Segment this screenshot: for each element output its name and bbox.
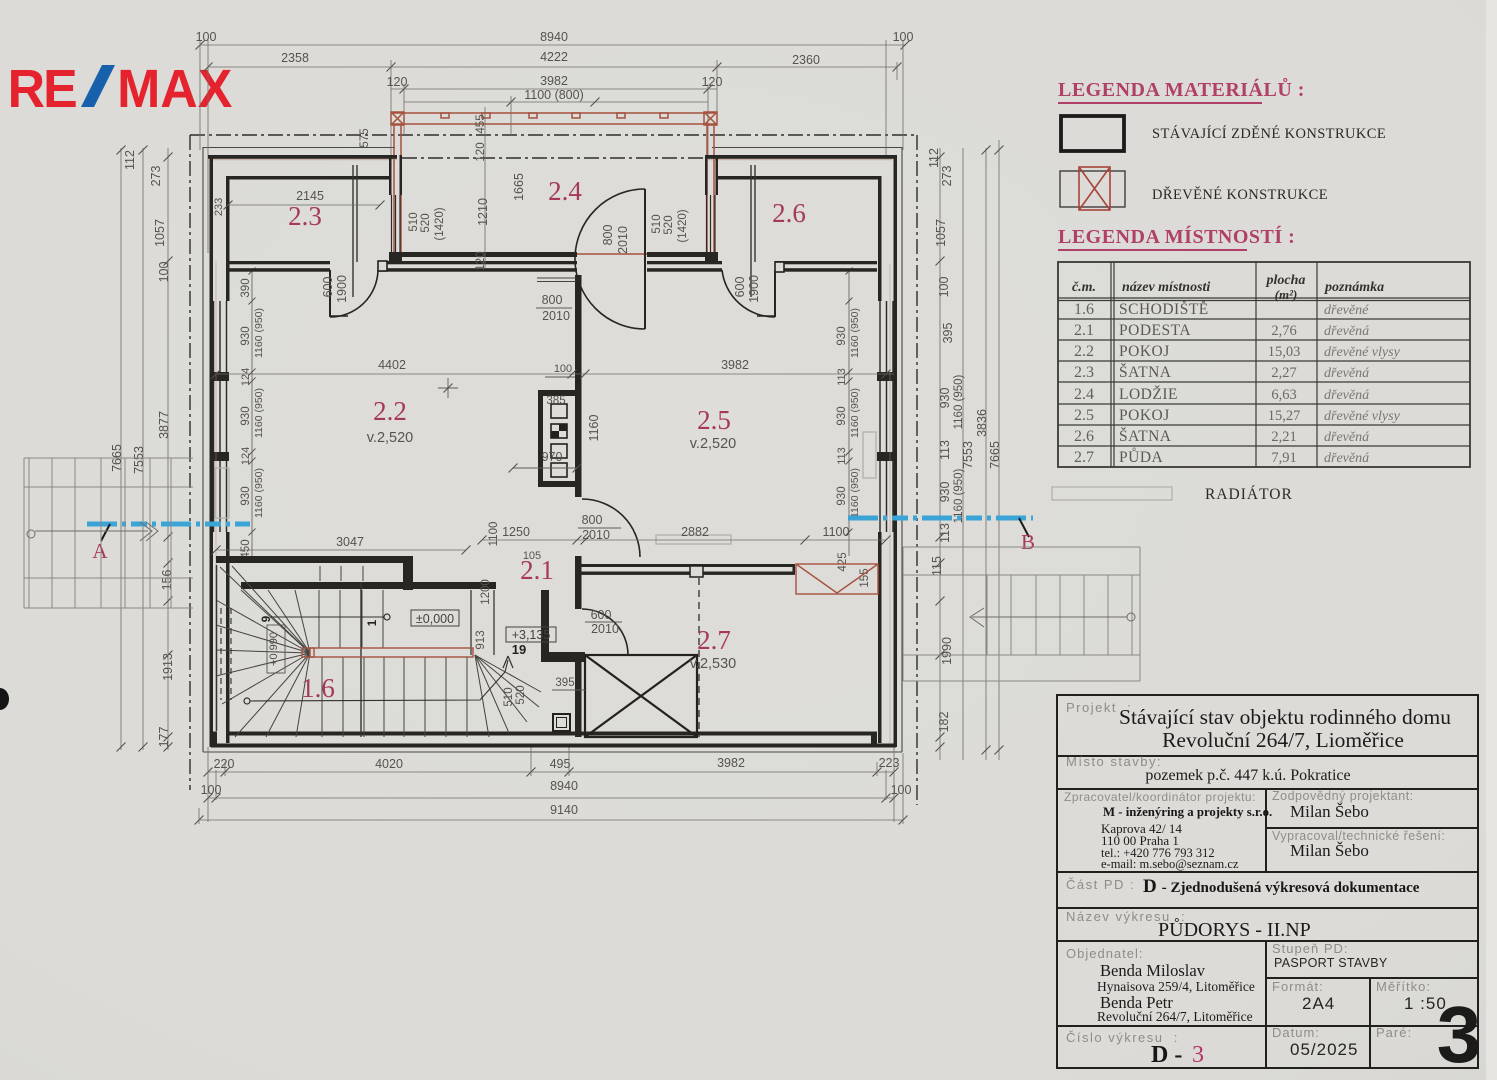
svg-text:100: 100	[937, 277, 951, 298]
svg-text:3047: 3047	[336, 535, 364, 549]
svg-text:DŘEVĚNÉ KONSTRUKCE: DŘEVĚNÉ KONSTRUKCE	[1152, 186, 1328, 203]
svg-text:450: 450	[240, 539, 252, 558]
svg-text:B: B	[1021, 530, 1035, 554]
svg-text:510: 510	[503, 687, 515, 706]
svg-text:3: 3	[1437, 990, 1482, 1079]
svg-text:2.2: 2.2	[1074, 343, 1094, 360]
svg-text:913: 913	[475, 630, 487, 649]
svg-text:3982: 3982	[540, 74, 568, 88]
svg-text:poznámka: poznámka	[1324, 280, 1384, 295]
svg-text:800: 800	[542, 293, 563, 307]
svg-text:Revoluční 264/7, Litoměřice: Revoluční 264/7, Litoměřice	[1097, 1009, 1253, 1024]
svg-text:510: 510	[651, 214, 663, 233]
svg-text:2.4: 2.4	[1074, 386, 1094, 403]
svg-text:495: 495	[550, 757, 571, 771]
svg-text:1913: 1913	[161, 653, 175, 681]
svg-text:1160 (950): 1160 (950)	[849, 388, 861, 438]
svg-text:7553: 7553	[961, 441, 975, 469]
svg-text:+3,135: +3,135	[512, 628, 551, 642]
svg-text:Benda Miloslav: Benda Miloslav	[1100, 961, 1206, 980]
svg-text:2.5: 2.5	[697, 405, 731, 435]
svg-text:124: 124	[240, 368, 252, 386]
svg-text:2.1: 2.1	[520, 555, 554, 585]
svg-text:600: 600	[321, 277, 335, 298]
svg-text:SCHODIŠTĚ: SCHODIŠTĚ	[1119, 301, 1209, 318]
svg-text:+0,990: +0,990	[268, 632, 280, 666]
svg-text:100: 100	[157, 262, 171, 283]
svg-text:1900: 1900	[335, 275, 349, 303]
svg-text:1.6: 1.6	[301, 673, 335, 703]
svg-text:120: 120	[475, 251, 487, 270]
svg-text:dřevěné: dřevěné	[1324, 303, 1369, 318]
svg-text:273: 273	[149, 166, 163, 187]
svg-text:115: 115	[930, 556, 944, 576]
svg-text:1900: 1900	[747, 275, 761, 303]
svg-text:dřevěná: dřevěná	[1324, 366, 1369, 381]
svg-text:RE: RE	[8, 59, 77, 119]
svg-text:Část PD :: Část PD :	[1066, 877, 1135, 892]
svg-text:273: 273	[940, 166, 954, 187]
svg-text:3877: 3877	[157, 411, 171, 439]
svg-text:POKOJ: POKOJ	[1119, 407, 1170, 424]
svg-text:e-mail: m.sebo@seznam.cz: e-mail: m.sebo@seznam.cz	[1101, 857, 1239, 871]
svg-text:1665: 1665	[512, 173, 526, 201]
svg-text:STÁVAJÍCÍ ZDĚNÉ KONSTRUKCE: STÁVAJÍCÍ ZDĚNÉ KONSTRUKCE	[1152, 125, 1386, 142]
svg-text:120: 120	[475, 142, 487, 161]
svg-text:7665: 7665	[988, 441, 1002, 469]
svg-text:930: 930	[836, 406, 848, 425]
svg-text:Stupeň PD:: Stupeň PD:	[1272, 941, 1349, 956]
svg-text:970: 970	[542, 450, 563, 464]
svg-text:124: 124	[240, 447, 252, 465]
svg-text:1100 (800): 1100 (800)	[524, 88, 584, 102]
svg-text:2010: 2010	[582, 528, 610, 542]
svg-text:182: 182	[937, 712, 951, 733]
svg-text:MAX: MAX	[117, 59, 232, 119]
svg-text:9: 9	[261, 616, 273, 622]
svg-text:Měřítko:: Měřítko:	[1376, 979, 1431, 994]
svg-text:2.2: 2.2	[373, 396, 407, 426]
svg-text:8940: 8940	[540, 30, 568, 44]
svg-text:ŠATNA: ŠATNA	[1119, 364, 1172, 381]
svg-text:390: 390	[240, 278, 252, 297]
svg-text:pozemek p.č. 447 k.ú. Pokratic: pozemek p.č. 447 k.ú. Pokratice	[1145, 767, 1350, 784]
svg-text:2358: 2358	[281, 51, 309, 65]
svg-text:A: A	[92, 539, 108, 563]
svg-text:Milan Šebo: Milan Šebo	[1290, 841, 1369, 860]
svg-text:v.2,530: v.2,530	[690, 656, 737, 672]
svg-text:1160 (950): 1160 (950)	[953, 374, 965, 429]
svg-text:ŠATNA: ŠATNA	[1119, 428, 1172, 445]
svg-text:1100: 1100	[823, 525, 850, 539]
svg-text:PŮDORYS - II.NP: PŮDORYS - II.NP	[1158, 917, 1311, 941]
svg-text:Datum:: Datum:	[1272, 1025, 1320, 1040]
svg-text:1250: 1250	[502, 525, 530, 539]
svg-text:800: 800	[601, 225, 615, 246]
svg-text:233: 233	[213, 198, 225, 216]
svg-text:155: 155	[859, 568, 871, 587]
svg-text:Zpracovatel/koordinátor projek: Zpracovatel/koordinátor projektu:	[1064, 790, 1256, 804]
svg-text:113: 113	[938, 440, 952, 460]
svg-text:930: 930	[836, 486, 848, 505]
svg-text:dřevěné vlysy: dřevěné vlysy	[1324, 345, 1401, 360]
svg-text:±0,000: ±0,000	[416, 612, 454, 626]
svg-text:1200: 1200	[480, 579, 492, 605]
svg-text:425: 425	[837, 552, 849, 571]
svg-text:2,27: 2,27	[1271, 365, 1296, 381]
svg-text:1.6: 1.6	[1074, 301, 1094, 318]
svg-text:930: 930	[836, 326, 848, 345]
svg-text:dřevěná: dřevěná	[1324, 451, 1369, 466]
svg-text:(m²): (m²)	[1275, 287, 1298, 302]
svg-text:15,03: 15,03	[1268, 344, 1301, 360]
svg-text:930: 930	[240, 326, 252, 345]
svg-text:2.1: 2.1	[1074, 322, 1094, 339]
svg-text:113: 113	[836, 447, 848, 465]
svg-text:112: 112	[927, 148, 941, 168]
svg-text:Objednatel:: Objednatel:	[1066, 946, 1144, 961]
svg-text:100: 100	[893, 30, 914, 44]
svg-text:1990: 1990	[940, 637, 954, 665]
svg-text:177: 177	[157, 727, 171, 748]
svg-text:Revoluční 264/7, Lioměřice: Revoluční 264/7, Lioměřice	[1162, 728, 1404, 752]
svg-text:1160 (950): 1160 (950)	[253, 468, 265, 518]
svg-text:113: 113	[938, 523, 952, 543]
svg-text:7553: 7553	[132, 446, 146, 474]
svg-text:1160 (950): 1160 (950)	[849, 308, 861, 358]
svg-text:395: 395	[941, 323, 955, 344]
svg-text:2010: 2010	[542, 309, 570, 323]
svg-text:2360: 2360	[792, 53, 820, 67]
svg-text:Hynaisova 259/4, Litoměřice: Hynaisova 259/4, Litoměřice	[1097, 979, 1255, 994]
svg-text:PŮDA: PŮDA	[1119, 448, 1164, 466]
svg-text:LEGENDA MATERIÁLŮ :: LEGENDA MATERIÁLŮ :	[1058, 77, 1305, 101]
svg-text:9140: 9140	[550, 803, 578, 817]
svg-text:600: 600	[591, 608, 612, 622]
svg-text:600: 600	[733, 277, 747, 298]
svg-text:č.m.: č.m.	[1072, 280, 1096, 295]
svg-text:PODESTA: PODESTA	[1119, 322, 1191, 339]
svg-text:3982: 3982	[717, 756, 745, 770]
svg-text:Paré:: Paré:	[1376, 1025, 1412, 1040]
svg-text:2.3: 2.3	[288, 201, 322, 231]
svg-text:plocha: plocha	[1266, 273, 1306, 288]
svg-text:RADIÁTOR: RADIÁTOR	[1205, 486, 1293, 503]
svg-text:2A4: 2A4	[1302, 994, 1335, 1013]
svg-text:8940: 8940	[550, 779, 578, 793]
svg-text:Stávající stav objektu rodinné: Stávající stav objektu rodinného domu	[1119, 705, 1451, 729]
svg-text:LEGENDA MÍSTNOSTÍ :: LEGENDA MÍSTNOSTÍ :	[1058, 225, 1295, 248]
svg-text:520: 520	[515, 685, 527, 704]
svg-text:15,27: 15,27	[1268, 408, 1301, 424]
svg-text:POKOJ: POKOJ	[1119, 343, 1170, 360]
svg-text:D: D	[1143, 876, 1157, 897]
svg-text:M - inženýring a projekty s.r.: M - inženýring a projekty s.r.o.	[1103, 805, 1272, 819]
svg-text:112: 112	[123, 150, 137, 170]
svg-text:6,63: 6,63	[1271, 387, 1296, 403]
svg-text:dřevěné vlysy: dřevěné vlysy	[1324, 409, 1401, 424]
svg-text:2010: 2010	[591, 622, 619, 636]
svg-text:930: 930	[938, 388, 952, 409]
svg-text:4020: 4020	[375, 757, 403, 771]
svg-text:2.7: 2.7	[697, 625, 731, 655]
svg-text:510: 510	[408, 212, 420, 231]
svg-text:1160 (950): 1160 (950)	[253, 308, 265, 358]
svg-text:7,91: 7,91	[1271, 450, 1296, 466]
svg-text:LODŽIE: LODŽIE	[1119, 386, 1178, 403]
svg-text:120: 120	[702, 75, 723, 89]
svg-text:2,21: 2,21	[1271, 429, 1296, 445]
svg-text:1160 (950): 1160 (950)	[953, 468, 965, 523]
svg-text:- Zjednodušená výkresová dokum: - Zjednodušená výkresová dokumentace	[1158, 880, 1420, 896]
svg-text:Milan Šebo: Milan Šebo	[1290, 802, 1369, 821]
svg-text:(1420): (1420)	[677, 209, 689, 242]
svg-text:1160 (950): 1160 (950)	[849, 468, 861, 518]
svg-text:dřevěná: dřevěná	[1324, 388, 1369, 403]
svg-text:2.3: 2.3	[1074, 364, 1094, 381]
svg-text:dřevěná: dřevěná	[1324, 430, 1369, 445]
svg-text:PASPORT STAVBY: PASPORT STAVBY	[1274, 956, 1388, 970]
svg-text:100: 100	[196, 30, 217, 44]
svg-text:v.2,520: v.2,520	[690, 436, 737, 452]
svg-text:4222: 4222	[540, 50, 568, 64]
svg-text:2.4: 2.4	[548, 176, 582, 206]
svg-text:575: 575	[359, 128, 371, 147]
svg-text:(1420): (1420)	[434, 207, 446, 240]
svg-text:název místnosti: název místnosti	[1122, 280, 1210, 295]
svg-text:100: 100	[554, 363, 572, 375]
svg-text:Formát:: Formát:	[1272, 979, 1324, 994]
svg-text:1160 (950): 1160 (950)	[253, 388, 265, 438]
svg-text:520: 520	[420, 213, 432, 232]
svg-text:113: 113	[836, 368, 848, 386]
svg-text:223: 223	[879, 756, 900, 770]
svg-text:2.6: 2.6	[1074, 428, 1094, 445]
svg-text:1: 1	[367, 619, 379, 626]
svg-text:385: 385	[546, 395, 565, 407]
svg-text:1057: 1057	[934, 219, 948, 247]
svg-text:2882: 2882	[681, 525, 709, 539]
svg-text:1160: 1160	[587, 415, 601, 442]
svg-text:1210: 1210	[476, 198, 490, 226]
svg-text:800: 800	[582, 513, 603, 527]
svg-text:930: 930	[240, 406, 252, 425]
svg-text:v.2,520: v.2,520	[367, 430, 414, 446]
svg-text:930: 930	[240, 486, 252, 505]
svg-text:Zodpovědný projektant:: Zodpovědný projektant:	[1272, 789, 1414, 803]
svg-text:455: 455	[475, 114, 487, 133]
svg-text:2.7: 2.7	[1074, 449, 1094, 466]
svg-text:3: 3	[1192, 1042, 1204, 1068]
svg-text:19: 19	[512, 642, 526, 657]
svg-text:1057: 1057	[153, 219, 167, 247]
svg-text:100: 100	[891, 783, 912, 797]
svg-text:1100: 1100	[488, 522, 500, 547]
svg-text:930: 930	[938, 482, 952, 503]
svg-text:2,76: 2,76	[1271, 323, 1296, 339]
svg-text:D -: D -	[1151, 1042, 1188, 1068]
svg-text:156: 156	[160, 570, 174, 591]
svg-text:3982: 3982	[721, 358, 749, 372]
svg-text:220: 220	[214, 757, 235, 771]
svg-text:4402: 4402	[378, 358, 406, 372]
svg-text:520: 520	[663, 215, 675, 234]
svg-text:3836: 3836	[975, 409, 989, 437]
svg-text:05/2025: 05/2025	[1290, 1040, 1358, 1059]
svg-text:2.5: 2.5	[1074, 407, 1094, 424]
svg-text:2010: 2010	[616, 226, 630, 254]
svg-text:100: 100	[201, 783, 222, 797]
svg-text:395: 395	[555, 677, 574, 689]
svg-text:120: 120	[387, 75, 408, 89]
svg-text:2.6: 2.6	[772, 198, 806, 228]
svg-text:dřevěná: dřevěná	[1324, 324, 1369, 339]
